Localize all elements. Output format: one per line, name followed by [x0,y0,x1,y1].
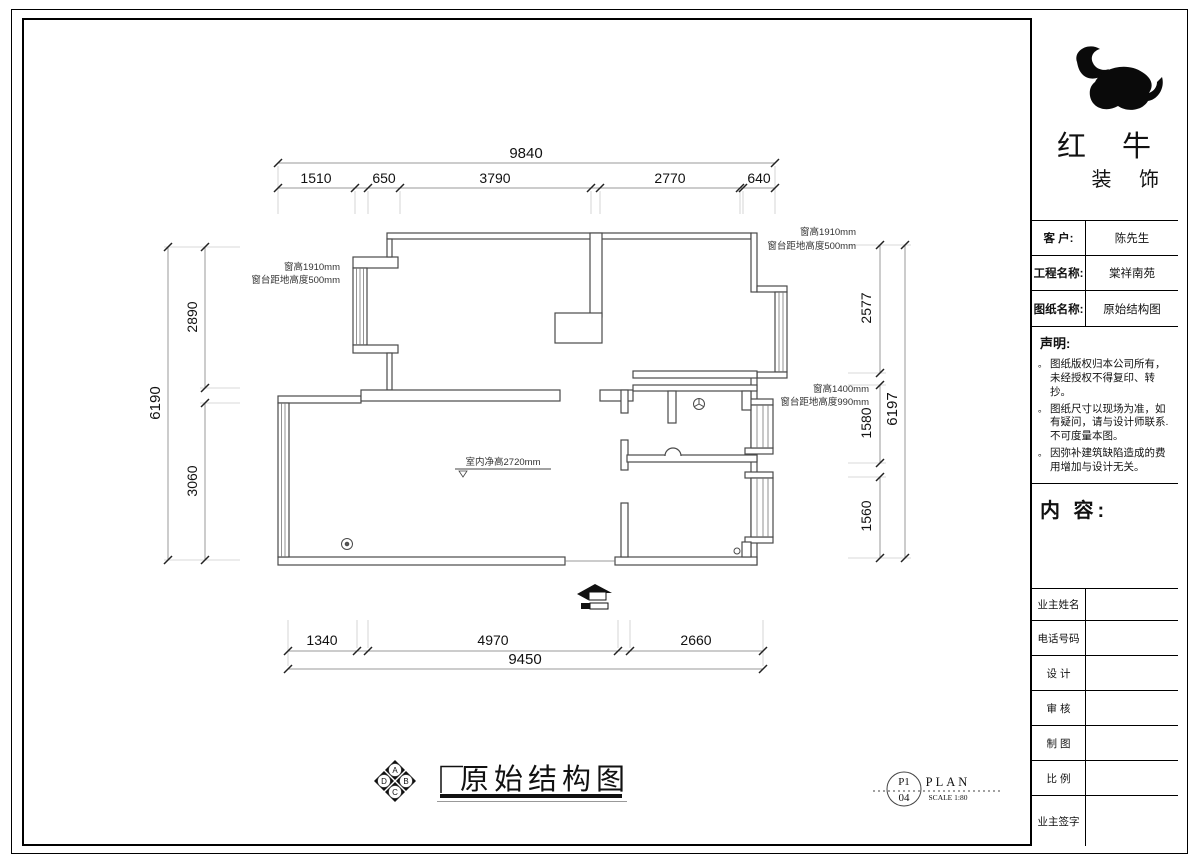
dim-left-seg-1: 2890 [184,301,200,332]
compass-letter-c: C [392,788,398,797]
dim-left-seg-2: 3060 [184,465,200,496]
info-row-drawing: 图纸名称: 原始结构图 [1032,291,1178,326]
ceiling-height-label: 室内净高2720mm [466,456,541,468]
dim-left-total: 6190 [147,386,164,419]
dim-right-seg-2: 1580 [858,407,874,438]
dim-top-seg-5: 640 [747,170,771,186]
logo-area: 红 牛 装 饰 [1032,18,1178,220]
project-value: 棠祥南苑 [1086,256,1178,290]
company-name-sub: 装 饰 [1032,168,1178,192]
dim-top-total: 9840 [509,145,542,162]
window-left-note-2: 窗台距地高度500mm [251,274,340,286]
sign-label: 审 核 [1032,691,1086,725]
sign-row-owner-name: 业主姓名 [1032,589,1178,621]
sign-value-cell [1086,691,1178,725]
statement-title: 声明: [1040,333,1172,352]
sign-row-reviewer: 审 核 [1032,691,1178,726]
sign-row-owner-signature: 业主签字 [1032,796,1178,846]
dim-right-total: 6197 [884,392,901,425]
sign-label: 业主姓名 [1032,589,1086,620]
dim-bottom-seg-3: 2660 [680,632,711,648]
floor-plan-drawing: 9840 1510 650 3790 2770 640 6190 2890 30… [0,0,1200,865]
plan-stamp: P1 04 PLAN SCALE 1:80 [873,772,1003,806]
dim-top-seg-2: 650 [372,170,396,186]
statement-section: 声明: 图纸版权归本公司所有，未经授权不得复印、转抄。 图纸尺寸以现场为准，如有… [1032,326,1178,483]
drawing-title-group: A B C D 原始结构图 [374,760,630,802]
customer-label: 客 户: [1032,221,1086,255]
window-top-right-note-2: 窗台距地高度500mm [767,240,856,252]
floor-plan-walls [278,233,787,565]
window-right-note-1: 窗高1400mm [813,383,869,395]
window-left-note-1: 窗高1910mm [284,261,340,273]
dim-top-seg-4: 2770 [654,170,685,186]
compass-letter-b: B [403,777,408,786]
dim-top-seg-1: 1510 [300,170,331,186]
dim-bottom-total: 9450 [508,651,541,668]
compass-letter-d: D [381,777,387,786]
title-block: 红 牛 装 饰 客 户: 陈先生 工程名称: 棠祥南苑 图纸名称: 原始结构图 … [1030,18,1178,846]
sign-row-phone: 电话号码 [1032,621,1178,656]
sign-value-cell [1086,621,1178,655]
sign-label: 比 例 [1032,761,1086,795]
stamp-scale: SCALE 1:80 [929,793,968,802]
compass-letter-a: A [392,766,398,775]
signature-table: 业主姓名 电话号码 设 计 审 核 制 图 比 例 [1032,588,1178,846]
window-right-note-2: 窗台距地高度990mm [780,396,869,408]
dim-bottom-seg-2: 4970 [477,632,508,648]
dim-right-seg-3: 1560 [858,500,874,531]
company-name: 红 牛 [1032,132,1178,164]
project-info-table: 客 户: 陈先生 工程名称: 棠祥南苑 图纸名称: 原始结构图 [1032,220,1178,326]
drawing-title: 原始结构图 [460,763,630,796]
sign-row-drafter: 制 图 [1032,726,1178,761]
statement-item: 图纸尺寸以现场为准，如有疑问，请与设计师联系.不可度量本图。 [1040,403,1172,445]
dim-right-seg-1: 2577 [858,292,874,323]
level-marker-icon [459,471,467,477]
sign-value-cell [1086,796,1178,846]
statement-item: 因弥补建筑缺陷造成的费用增加与设计无关。 [1040,447,1172,475]
content-label: 内 容: [1040,500,1108,522]
sign-label: 业主签字 [1032,796,1086,846]
drawing-name-label: 图纸名称: [1032,291,1086,326]
drawing-name-value: 原始结构图 [1086,291,1178,326]
sign-row-designer: 设 计 [1032,656,1178,691]
company-logo [1045,40,1165,132]
stamp-sheet: P1 [898,776,910,788]
customer-value: 陈先生 [1086,221,1178,255]
drain-symbol-2 [734,548,740,554]
plan-symbols [342,399,741,555]
stamp-type: PLAN [926,775,971,789]
info-row-project: 工程名称: 棠祥南苑 [1032,256,1178,291]
sign-value-cell [1086,726,1178,760]
compass-icon: A B C D [374,760,416,802]
sign-value-cell [1086,761,1178,795]
window-top-right-note-1: 窗高1910mm [800,226,856,238]
sign-label: 电话号码 [1032,621,1086,655]
statement-list: 图纸版权归本公司所有，未经授权不得复印、转抄。 图纸尺寸以现场为准，如有疑问，请… [1040,358,1172,475]
sign-row-scale: 比 例 [1032,761,1178,796]
dim-bottom-seg-1: 1340 [306,632,337,648]
sign-value-cell [1086,589,1178,620]
window-glazing-lines [282,268,784,561]
sign-label: 设 计 [1032,656,1086,690]
ceiling-height-note: 室内净高2720mm [455,456,551,477]
sign-label: 制 图 [1032,726,1086,760]
stamp-number: 04 [899,792,911,804]
sign-value-cell [1086,656,1178,690]
project-label: 工程名称: [1032,256,1086,290]
statement-item: 图纸版权归本公司所有，未经授权不得复印、转抄。 [1040,358,1172,400]
content-section: 内 容: [1032,483,1178,588]
info-row-customer: 客 户: 陈先生 [1032,221,1178,256]
drawing-sheet: 9840 1510 650 3790 2770 640 6190 2890 30… [0,0,1200,865]
entry-door-icon [577,584,612,609]
dim-top-seg-3: 3790 [479,170,510,186]
